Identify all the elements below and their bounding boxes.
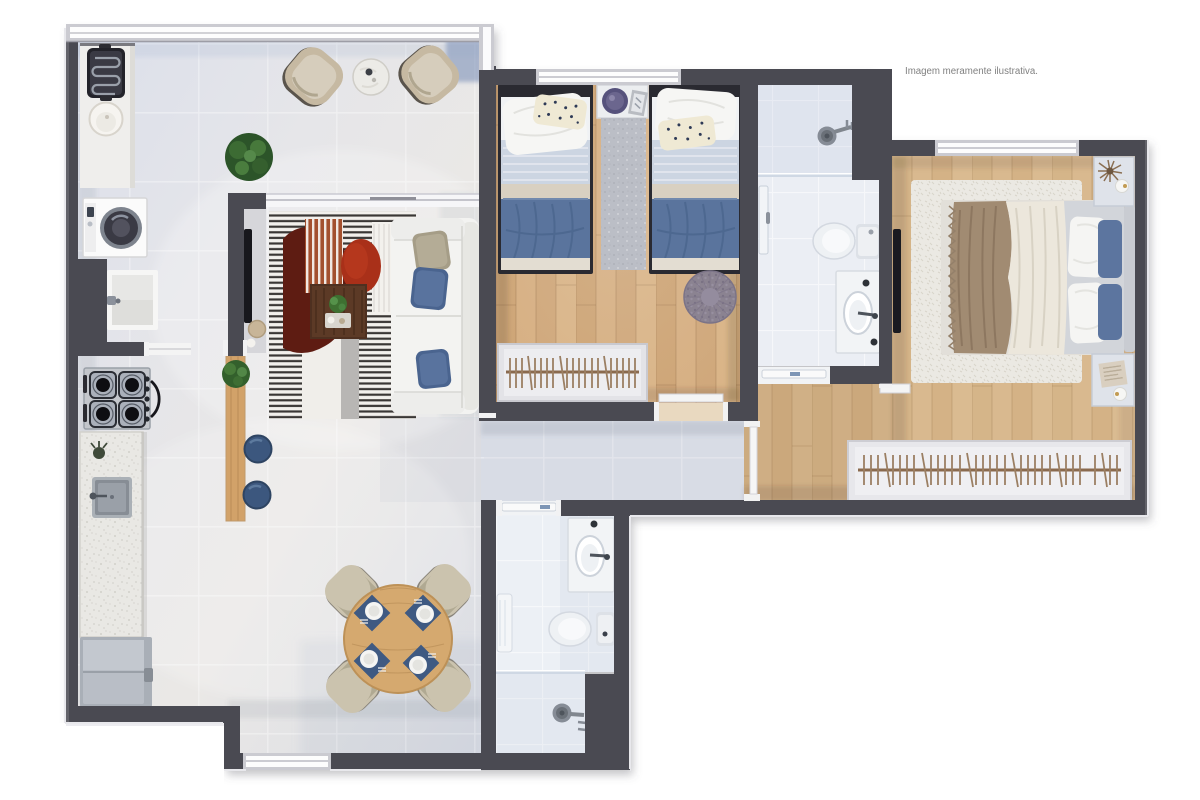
svg-text:Imagem meramente ilustrativa.: Imagem meramente ilustrativa. [905,66,1038,77]
